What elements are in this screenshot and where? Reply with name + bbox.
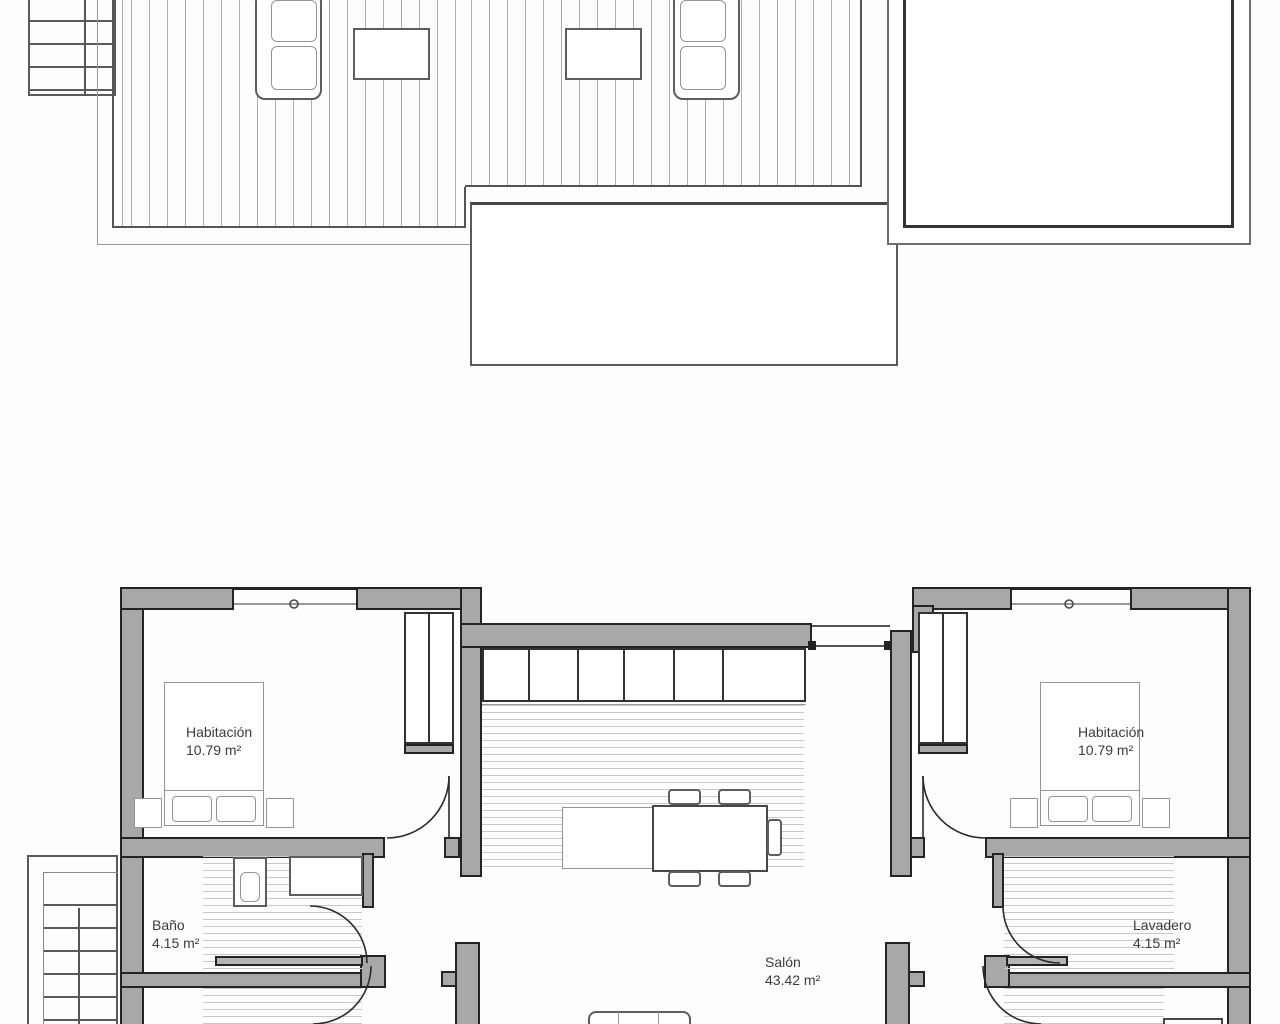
staircase-lower-steps	[43, 872, 118, 1024]
pillow	[172, 796, 212, 822]
nightstand	[1142, 798, 1170, 828]
door-leaf-bar	[1006, 956, 1068, 966]
coffee-table-icon	[565, 28, 642, 80]
window-right-inner-line	[1012, 603, 1130, 605]
wall-top-left	[120, 587, 234, 610]
chair-icon	[718, 789, 751, 805]
wall-wardrobeR-stub	[918, 744, 968, 754]
floor-plan-canvas: Habitación 10.79 m² Habitación 10.79 m² …	[0, 0, 1280, 1024]
nightstand	[1010, 798, 1038, 828]
room-name: Lavadero	[1133, 916, 1191, 934]
appliance-icon	[1163, 1018, 1223, 1024]
sofa-arm-line	[658, 1012, 659, 1024]
room-name: Habitación	[1078, 723, 1144, 741]
central-window-line1	[812, 625, 890, 627]
central-window-node	[884, 641, 892, 650]
wall-pillar-right	[885, 942, 910, 1024]
room-name: Salón	[765, 953, 820, 971]
roof-terrace-plan	[0, 0, 1280, 400]
room-label-living: Salón 43.42 m²	[765, 953, 820, 989]
sofa-cushion	[271, 46, 317, 90]
deck-step-edge	[464, 187, 466, 228]
wall-laundry-left-stub	[992, 853, 1004, 908]
wall-kitchen-band	[460, 623, 812, 648]
wardrobe-door-split	[428, 614, 430, 742]
sofa-cushion	[271, 0, 317, 42]
wall-wardrobeL-stub	[404, 744, 454, 754]
sofa-icon	[588, 1011, 691, 1024]
deck-rim-bottom	[97, 244, 473, 245]
kitchen-cabinets	[482, 648, 806, 702]
room-label-laundry: Lavadero 4.15 m²	[1133, 916, 1191, 952]
window-left-inner-line	[234, 603, 356, 605]
pillow	[1048, 796, 1088, 822]
chair-icon	[718, 871, 751, 887]
window-right-outer-line	[1010, 587, 1132, 590]
cabinet-divider	[673, 650, 675, 700]
cabinet-divider	[577, 650, 579, 700]
lower-terrace-room	[470, 202, 898, 366]
dining-table-icon	[652, 805, 768, 872]
staircase-upper	[28, 0, 116, 96]
wall-bedroomR-bottom	[985, 837, 1251, 858]
wall-top-left2	[356, 587, 462, 610]
wall-pillar-left	[455, 942, 480, 1024]
wall-central-right-notch	[910, 837, 925, 858]
door-leaf-bar	[215, 956, 363, 966]
deck-right	[465, 0, 862, 187]
central-window-line2	[812, 645, 890, 647]
pillow	[216, 796, 256, 822]
room-label-bathroom: Baño 4.15 m²	[152, 916, 199, 952]
pillow	[1092, 796, 1132, 822]
wall-right-outer	[1227, 587, 1251, 1024]
wall-bath-bottom	[120, 972, 370, 988]
staircase-upper-divider	[84, 0, 86, 96]
chair-icon	[767, 819, 782, 856]
chair-icon	[668, 789, 701, 805]
sink-counter-icon	[289, 856, 363, 896]
bed-sheet-line	[164, 790, 264, 791]
dining-rug	[562, 807, 654, 869]
staircase-lower-divider	[78, 908, 80, 1024]
wall-pillar-right-stub	[908, 971, 925, 987]
cabinet-divider	[722, 650, 724, 700]
central-window-node	[808, 641, 816, 650]
wall-laundry-bottom	[1008, 972, 1251, 988]
lower-left-room-floor	[203, 988, 362, 1024]
room-label-bedroom-left: Habitación 10.79 m²	[186, 723, 252, 759]
deck-rim-left	[97, 0, 98, 245]
sofa-icon	[255, 0, 322, 100]
chair-icon	[668, 871, 701, 887]
wall-central-left-notch	[444, 837, 460, 858]
wall-central-right	[890, 630, 912, 877]
cabinet-divider	[528, 650, 530, 700]
nightstand	[266, 798, 294, 828]
window-left-outer-line	[232, 587, 358, 590]
bed-sheet-line	[1040, 790, 1140, 791]
laundry-floor	[1004, 856, 1174, 970]
upper-right-room-inner	[903, 0, 1234, 228]
room-area: 4.15 m²	[152, 934, 199, 952]
room-label-bedroom-right: Habitación 10.79 m²	[1078, 723, 1144, 759]
sofa-cushion	[680, 0, 726, 42]
sofa-icon	[673, 0, 740, 100]
sofa-cushion	[680, 46, 726, 90]
coffee-table-icon	[353, 28, 430, 80]
toilet-icon	[233, 857, 267, 907]
sofa-arm-line	[618, 1012, 619, 1024]
wardrobe-door-split	[942, 614, 944, 742]
wall-bath-right-stub	[362, 853, 374, 908]
toilet-bowl	[240, 872, 260, 902]
room-name: Habitación	[186, 723, 252, 741]
ground-floor-plan: Habitación 10.79 m² Habitación 10.79 m² …	[0, 400, 1280, 1024]
room-area: 10.79 m²	[1078, 741, 1144, 759]
cabinet-divider	[623, 650, 625, 700]
wall-pillar-left-stub	[441, 971, 457, 987]
room-area: 4.15 m²	[1133, 934, 1191, 952]
wall-bath-bottom-cap	[360, 955, 386, 988]
room-area: 43.42 m²	[765, 971, 820, 989]
wall-bedroomL-bottom	[120, 837, 385, 858]
room-area: 10.79 m²	[186, 741, 252, 759]
nightstand	[134, 798, 162, 828]
room-name: Baño	[152, 916, 199, 934]
lower-right-room-floor	[1004, 988, 1164, 1024]
